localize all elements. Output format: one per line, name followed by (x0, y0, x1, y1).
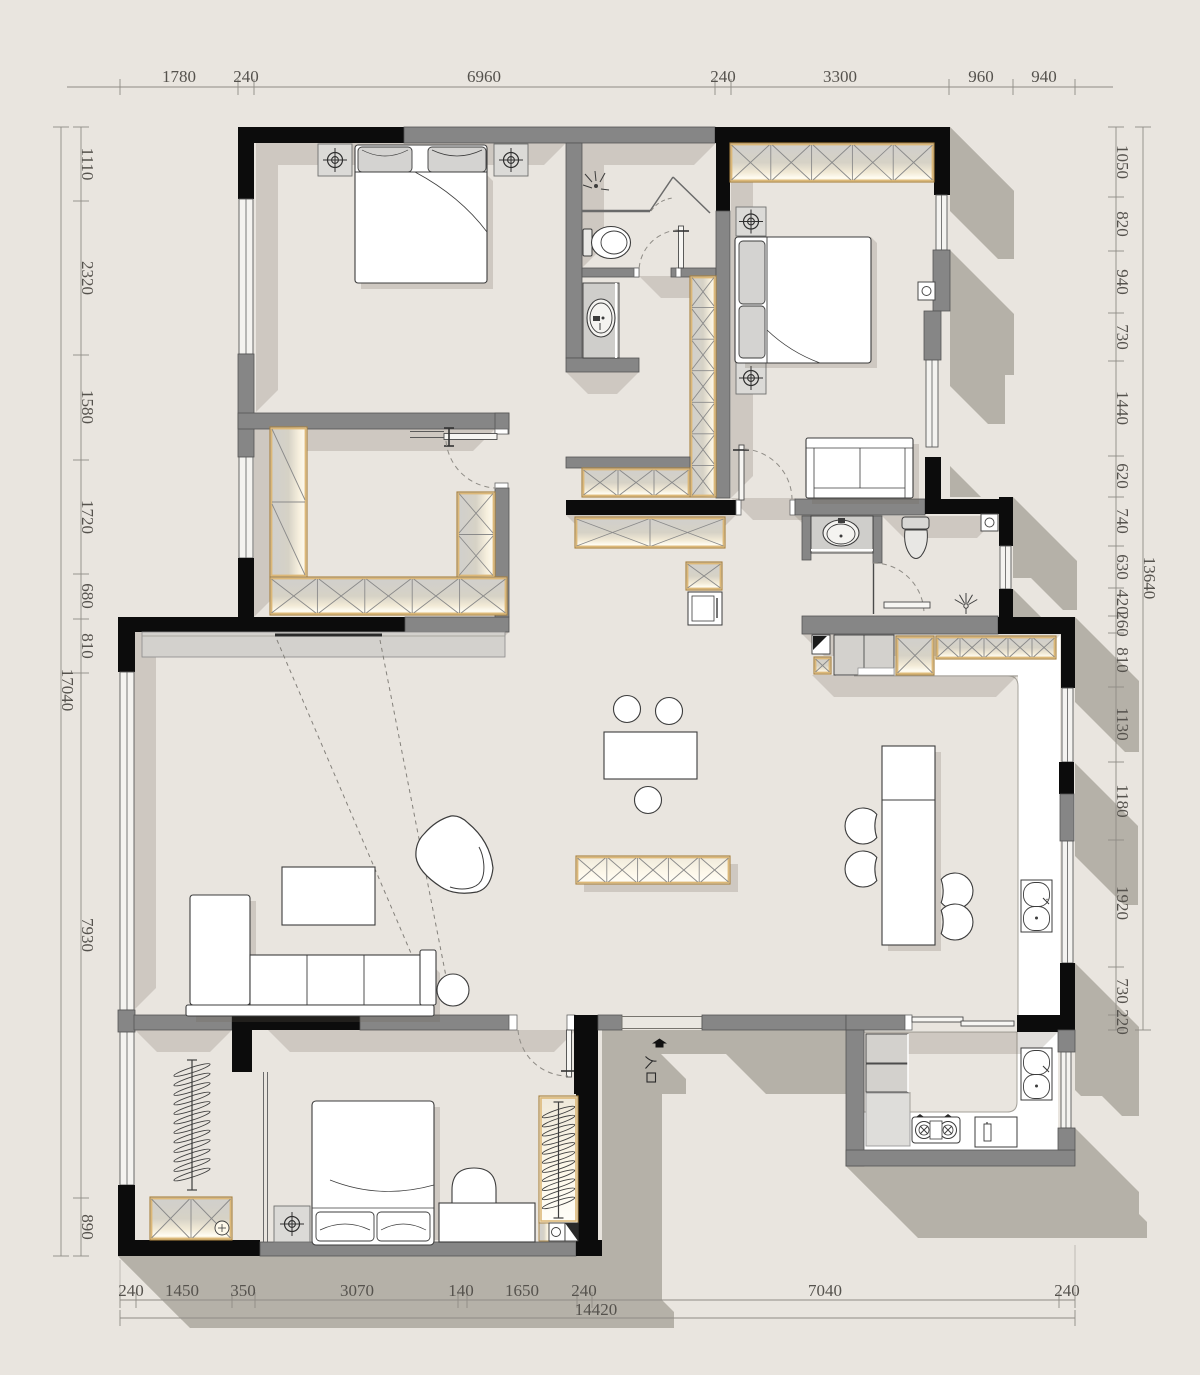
svg-text:1110: 1110 (78, 148, 97, 181)
svg-text:1050: 1050 (1113, 145, 1132, 179)
svg-text:260: 260 (1113, 611, 1132, 637)
svg-text:1650: 1650 (505, 1281, 539, 1300)
svg-text:6960: 6960 (467, 67, 501, 86)
svg-text:1920: 1920 (1113, 886, 1132, 920)
svg-text:13640: 13640 (1140, 557, 1159, 600)
svg-text:7040: 7040 (808, 1281, 842, 1300)
svg-text:1130: 1130 (1113, 707, 1132, 740)
svg-text:2320: 2320 (78, 261, 97, 295)
svg-text:14420: 14420 (575, 1300, 618, 1319)
svg-text:1780: 1780 (162, 67, 196, 86)
svg-text:820: 820 (1113, 211, 1132, 237)
svg-text:940: 940 (1113, 269, 1132, 295)
svg-text:1180: 1180 (1113, 784, 1132, 817)
svg-text:1580: 1580 (78, 390, 97, 424)
svg-text:630: 630 (1113, 554, 1132, 580)
svg-text:740: 740 (1113, 508, 1132, 534)
svg-text:810: 810 (78, 633, 97, 659)
svg-text:810: 810 (1113, 647, 1132, 673)
svg-text:240: 240 (710, 67, 736, 86)
svg-text:240: 240 (571, 1281, 597, 1300)
svg-text:140: 140 (448, 1281, 474, 1300)
svg-text:220: 220 (1113, 1009, 1132, 1035)
svg-text:680: 680 (78, 583, 97, 609)
svg-text:240: 240 (1054, 1281, 1080, 1300)
svg-text:1440: 1440 (1113, 391, 1132, 425)
svg-text:240: 240 (118, 1281, 144, 1300)
svg-text:890: 890 (78, 1214, 97, 1240)
svg-text:960: 960 (968, 67, 994, 86)
svg-text:3300: 3300 (823, 67, 857, 86)
svg-text:7930: 7930 (78, 918, 97, 952)
svg-text:1450: 1450 (165, 1281, 199, 1300)
svg-text:620: 620 (1113, 463, 1132, 489)
svg-text:940: 940 (1031, 67, 1057, 86)
svg-text:▪: ▪ (1046, 898, 1048, 903)
svg-text:730: 730 (1113, 324, 1132, 350)
svg-text:3070: 3070 (340, 1281, 374, 1300)
svg-text:730: 730 (1113, 978, 1132, 1004)
svg-text:240: 240 (233, 67, 259, 86)
svg-text:17040: 17040 (58, 669, 77, 712)
svg-text:350: 350 (230, 1281, 256, 1300)
svg-text:1720: 1720 (78, 500, 97, 534)
